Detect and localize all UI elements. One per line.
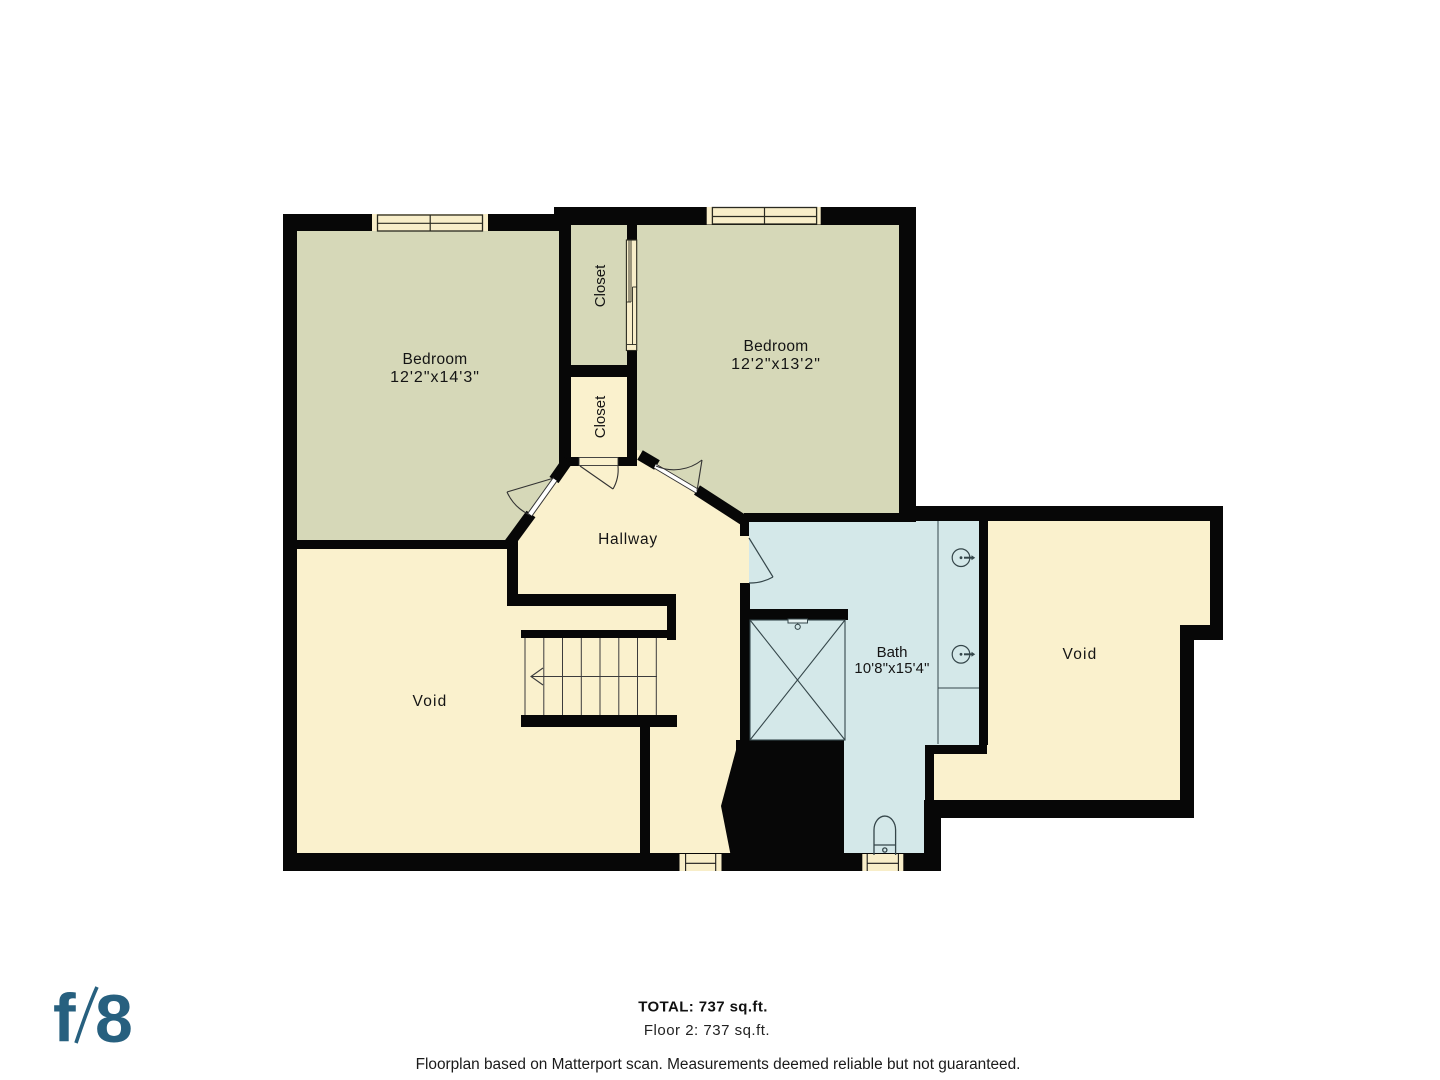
svg-text:Bedroom: Bedroom [744,338,809,355]
svg-text:Floor 2: 737 sq.ft.: Floor 2: 737 sq.ft. [644,1022,770,1039]
svg-text:f: f [53,980,76,1056]
svg-text:Void: Void [1063,646,1098,663]
svg-text:10'8"x15'4": 10'8"x15'4" [854,661,929,677]
svg-text:12'2"x13'2": 12'2"x13'2" [731,356,821,373]
svg-text:Bath: Bath [877,644,908,661]
svg-text:Bedroom: Bedroom [403,351,468,368]
svg-text:8: 8 [95,981,133,1057]
svg-text:Hallway: Hallway [598,531,658,548]
svg-text:Closet: Closet [592,264,609,307]
svg-text:12'2"x14'3": 12'2"x14'3" [390,369,480,386]
svg-text:Void: Void [413,693,448,710]
svg-text:Closet: Closet [592,395,609,438]
svg-text:Floorplan based on Matterport: Floorplan based on Matterport scan. Meas… [416,1056,1021,1073]
svg-text:TOTAL: 737 sq.ft.: TOTAL: 737 sq.ft. [638,999,768,1016]
